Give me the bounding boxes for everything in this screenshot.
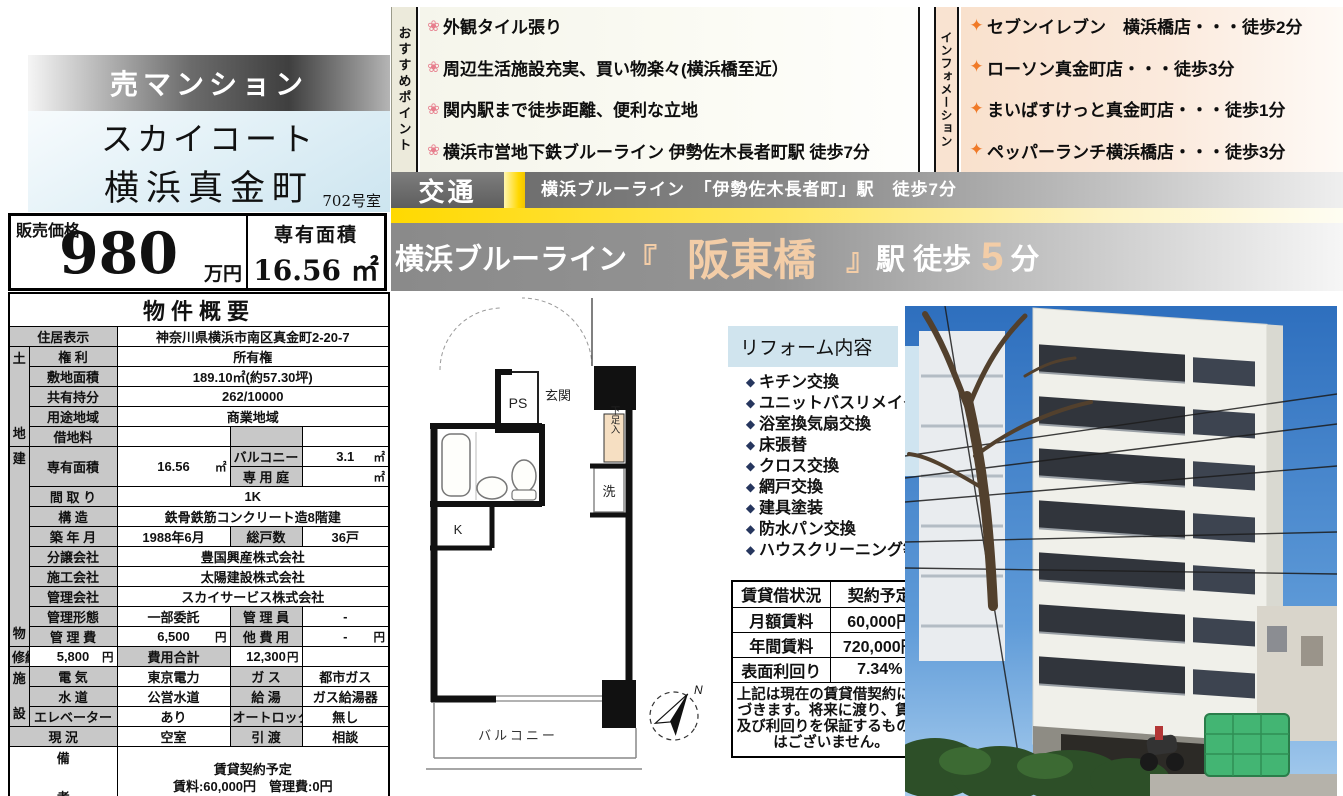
- overview-row: 敷地面積189.10㎡(約57.30坪): [9, 367, 389, 387]
- tarp-cart: [1205, 714, 1289, 776]
- information-list: ✦セブンイレブン 横浜橋店・・・徒歩2分✦ローソン真金町店・・・徒歩3分✦まいば…: [961, 7, 1343, 172]
- diamond-icon: ◆: [742, 414, 759, 435]
- overview-row: 分譲会社豊国興産株式会社: [9, 547, 389, 567]
- overview-cell: 借地料: [29, 427, 117, 447]
- overview-cell: -円: [302, 627, 389, 647]
- reform-item-label: 建具塗装: [759, 498, 823, 519]
- station-bracket-open: 『: [627, 235, 657, 279]
- overview-row: 共有持分262/10000: [9, 387, 389, 407]
- property-flyer: 売マンション スカイコート 横浜真金町 702号室 販売価格 980 万円 専有…: [0, 0, 1343, 796]
- overview-cell: 5,800円: [29, 647, 117, 667]
- overview-row: 築 年 月1988年6月総戸数36戸: [9, 527, 389, 547]
- recommend-item-label: 関内駅まで徒歩距離、便利な立地: [443, 96, 698, 121]
- transport-label: 交通: [391, 172, 504, 208]
- area-value: 16.56 ㎡: [248, 249, 384, 289]
- overview-cell: 公営水道: [117, 687, 230, 707]
- reform-item: ◆建具塗装: [742, 498, 919, 519]
- overview-cell: 構 造: [29, 507, 117, 527]
- flower-icon: ❀: [424, 58, 443, 76]
- overview-cell: 権 利: [29, 347, 117, 367]
- rental-note: 上記は現在の賃貸借契約に基づきます。将来に渡り、賃料及び利回りを保証するものでは…: [733, 683, 929, 756]
- recommend-item: ❀横浜市営地下鉄ブルーライン 伊勢佐木長者町駅 徒歩7分: [424, 138, 918, 163]
- reform-item: ◆キチン交換: [742, 372, 919, 393]
- diamond-icon: ◆: [742, 477, 759, 498]
- diamond-icon: ◆: [742, 372, 759, 393]
- overview-cell: 一部委託: [117, 607, 230, 627]
- diamond-icon: ◆: [742, 456, 759, 477]
- yellow-wedge: [504, 172, 525, 208]
- overview-cell: 管理形態: [29, 607, 117, 627]
- overview-cell: 共有持分: [29, 387, 117, 407]
- toilet: [512, 460, 536, 492]
- reform-item-label: ハウスクリーニング等: [759, 540, 919, 561]
- reform-item: ◆浴室換気扇交換: [742, 414, 919, 435]
- information-item: ✦ペッパーランチ横浜橋店・・・徒歩3分: [966, 138, 1343, 163]
- information-item: ✦セブンイレブン 横浜橋店・・・徒歩2分: [966, 13, 1343, 38]
- diamond-icon: ◆: [742, 393, 759, 414]
- overview-row: 借地料: [9, 427, 389, 447]
- recommend-points-vertical-label: おすすめポイント: [391, 7, 418, 172]
- rental-status-box: 賃貸借状況契約予定月額賃料60,000円年間賃料720,000円表面利回り7.3…: [731, 580, 931, 758]
- overview-cell: 施工会社: [29, 567, 117, 587]
- overview-cell: 土地: [9, 347, 29, 447]
- overview-row: 建物専有面積16.56㎡バルコニー3.1㎡: [9, 447, 389, 467]
- overview-cell: [302, 427, 389, 447]
- overview-cell: [230, 427, 302, 447]
- overview-cell: 用途地域: [29, 407, 117, 427]
- information-item-label: ローソン真金町店・・・徒歩3分: [987, 55, 1234, 80]
- station-line-name: 横浜ブルーライン: [395, 236, 627, 278]
- overview-cell: 空室: [117, 727, 230, 747]
- overview-cell: [117, 427, 230, 447]
- station-bracket-close: 』: [846, 235, 876, 279]
- ps-label: PS: [509, 395, 528, 411]
- property-overview-table: 物件概要 住居表示神奈川県横浜市南区真金町2-20-7土地権 利所有権敷地面積1…: [8, 292, 390, 796]
- overview-cell: スカイサービス株式会社: [117, 587, 389, 607]
- overview-cell: 189.10㎡(約57.30坪): [117, 367, 389, 387]
- overview-cell: 備考: [9, 747, 117, 796]
- overview-cell: 1988年6月: [117, 527, 230, 547]
- reform-item-label: 防水パン交換: [759, 519, 856, 540]
- rental-label: 月額賃料: [733, 607, 830, 632]
- overview-row: 間 取 り1K: [9, 487, 389, 507]
- overview-cell: 管理会社: [29, 587, 117, 607]
- overview-cell: 所有権: [117, 347, 389, 367]
- overview-cell: 専有面積: [29, 447, 117, 487]
- overview-cell: 引 渡: [230, 727, 302, 747]
- overview-cell: 専 用 庭: [230, 467, 302, 487]
- overview-cell: -: [302, 607, 389, 627]
- bathtub: [442, 434, 470, 496]
- overview-cell: 神奈川県横浜市南区真金町2-20-7: [117, 327, 389, 347]
- information-item-label: まいばすけっと真金町店・・・徒歩1分: [987, 96, 1285, 121]
- reform-item-label: 網戸交換: [759, 477, 823, 498]
- reform-item: ◆ハウスクリーニング等: [742, 540, 919, 561]
- overview-cell: 36戸: [302, 527, 389, 547]
- overview-cell: 建物: [9, 447, 29, 647]
- overview-cell: 東京電力: [117, 667, 230, 687]
- sale-type-banner: 売マンション: [28, 55, 390, 111]
- overview-cell: 1K: [117, 487, 389, 507]
- station-walk-minutes: 5: [981, 235, 1003, 280]
- flower-icon: ❀: [424, 141, 443, 159]
- transport-bar: 交通 横浜ブルーライン 「伊勢佐木長者町」駅 徒歩7分: [391, 172, 1343, 208]
- rental-status-table: 賃貸借状況契約予定月額賃料60,000円年間賃料720,000円表面利回り7.3…: [733, 582, 929, 683]
- overview-cell: 16.56㎡: [117, 447, 230, 487]
- reform-item-label: 床張替: [759, 435, 807, 456]
- overview-cell: 間 取 り: [29, 487, 117, 507]
- diamond-icon: ✦: [966, 99, 987, 119]
- wall-block-bottom: [602, 680, 636, 728]
- overview-cell: ㎡: [302, 467, 389, 487]
- overview-header-row: 物件概要: [9, 293, 389, 327]
- recommend-item-label: 外観タイル張り: [443, 13, 562, 38]
- flower-icon: ❀: [424, 17, 443, 35]
- overview-cell: 修繕積立金: [9, 647, 29, 667]
- overview-cell: 分譲会社: [29, 547, 117, 567]
- overview-cell: エレベーター: [29, 707, 117, 727]
- overview-cell: 都市ガス: [302, 667, 389, 687]
- overview-row: エレベーターありオートロック無し: [9, 707, 389, 727]
- information-item-label: ペッパーランチ横浜橋店・・・徒歩3分: [987, 138, 1285, 163]
- overview-row: 用途地域商業地域: [9, 407, 389, 427]
- overview-row: 管理会社スカイサービス株式会社: [9, 587, 389, 607]
- information-item: ✦まいばすけっと真金町店・・・徒歩1分: [966, 96, 1343, 121]
- station-minutes-unit: 分: [1010, 236, 1039, 278]
- overview-cell: 総戸数: [230, 527, 302, 547]
- overview-cell: あり: [117, 707, 230, 727]
- overview-cell: 敷地面積: [29, 367, 117, 387]
- diamond-icon: ✦: [966, 16, 987, 36]
- recommend-item-label: 横浜市営地下鉄ブルーライン 伊勢佐木長者町駅 徒歩7分: [443, 138, 870, 163]
- kitchen-label: K: [454, 522, 463, 537]
- station-name: 阪東橋: [687, 226, 816, 288]
- overview-cell: 他 費 用: [230, 627, 302, 647]
- rental-row: 表面利回り7.34%: [733, 657, 929, 682]
- station-suffix: 駅 徒歩: [876, 236, 971, 278]
- price-cell: 販売価格 980 万円: [11, 216, 248, 288]
- shoe-box-label: 下足入: [609, 406, 621, 435]
- price-value: 980: [59, 224, 178, 284]
- reform-list: ◆キチン交換◆ユニットバスリメイク◆浴室換気扇交換◆床張替◆クロス交換◆網戸交換…: [742, 372, 919, 561]
- diamond-icon: ◆: [742, 498, 759, 519]
- information-vertical-label: インフォメーション: [934, 7, 959, 172]
- overview-row: 構 造鉄骨鉄筋コンクリート造8階建: [9, 507, 389, 527]
- reform-item-label: キチン交換: [759, 372, 839, 393]
- overview-cell: 水 道: [29, 687, 117, 707]
- overview-row: 管理形態一部委託管 理 員-: [9, 607, 389, 627]
- building-name-banner: スカイコート 横浜真金町 702号室: [28, 111, 390, 212]
- rental-label: 年間賃料: [733, 632, 830, 657]
- diamond-icon: ◆: [742, 540, 759, 561]
- price-box: 販売価格 980 万円 専有面積 16.56 ㎡: [8, 213, 387, 291]
- area-cell: 専有面積 16.56 ㎡: [248, 216, 384, 288]
- overview-row: 修繕積立金5,800円費用合計12,300円: [9, 647, 389, 667]
- washer-label: 洗: [602, 484, 615, 499]
- transport-line-text: 横浜ブルーライン 「伊勢佐木長者町」駅 徒歩7分: [525, 172, 1343, 208]
- station-banner: 横浜ブルーライン 『 阪東橋 』 駅 徒歩 5 分: [391, 223, 1343, 291]
- overview-cell: 3.1㎡: [302, 447, 389, 467]
- overview-cell: ガス給湯器: [302, 687, 389, 707]
- overview-cell: 築 年 月: [29, 527, 117, 547]
- overview-cell: 鉄骨鉄筋コンクリート造8階建: [117, 507, 389, 527]
- sink: [477, 477, 507, 499]
- wall-block-top: [594, 366, 636, 410]
- rental-label: 賃貸借状況: [733, 582, 830, 607]
- overview-cell: 給 湯: [230, 687, 302, 707]
- overview-cell: 現 況: [9, 727, 117, 747]
- overview-cell: 賃貸契約予定賃料:60,000円 管理費:0円: [117, 747, 389, 796]
- rental-label: 表面利回り: [733, 657, 830, 682]
- rental-row: 月額賃料60,000円: [733, 607, 929, 632]
- overview-cell: 管 理 員: [230, 607, 302, 627]
- overview-cell: 管 理 費: [29, 627, 117, 647]
- yellow-stripe: [391, 208, 1343, 223]
- overview-row: 管 理 費6,500円他 費 用-円: [9, 627, 389, 647]
- recommend-item-label: 周辺生活施設充実、買い物楽々(横浜橋至近）: [443, 55, 789, 80]
- overview-row: 土地権 利所有権: [9, 347, 389, 367]
- overview-cell: 豊国興産株式会社: [117, 547, 389, 567]
- information-item: ✦ローソン真金町店・・・徒歩3分: [966, 55, 1343, 80]
- overview-row: 現 況空室引 渡相談: [9, 727, 389, 747]
- overview-row: 備考賃貸契約予定賃料:60,000円 管理費:0円: [9, 747, 389, 796]
- building-name-line1: スカイコート: [28, 111, 390, 160]
- overview-cell: ガ ス: [230, 667, 302, 687]
- floor-plan: PS 玄関 下足入 洗 K バ: [398, 296, 738, 796]
- overview-row: 住居表示神奈川県横浜市南区真金町2-20-7: [9, 327, 389, 347]
- reform-item: ◆ユニットバスリメイク: [742, 393, 919, 414]
- reform-item: ◆防水パン交換: [742, 519, 919, 540]
- balcony-label: バルコニー: [478, 728, 558, 743]
- overview-row: 施工会社太陽建設株式会社: [9, 567, 389, 587]
- overview-row: 水 道公営水道給 湯ガス給湯器: [9, 687, 389, 707]
- overview-cell: オートロック: [230, 707, 302, 727]
- overview-cell: 住居表示: [9, 327, 117, 347]
- entrance-label: 玄関: [545, 388, 571, 403]
- recommend-item: ❀外観タイル張り: [424, 13, 918, 38]
- overview-cell: 太陽建設株式会社: [117, 567, 389, 587]
- overview-cell: 12,300円: [230, 647, 302, 667]
- diamond-icon: ✦: [966, 140, 987, 160]
- recommend-item: ❀周辺生活施設充実、買い物楽々(横浜橋至近）: [424, 55, 918, 80]
- information-item-label: セブンイレブン 横浜橋店・・・徒歩2分: [987, 13, 1302, 38]
- overview-cell: 無し: [302, 707, 389, 727]
- overview-row: 施設電 気東京電力ガ ス都市ガス: [9, 667, 389, 687]
- area-label: 専有面積: [248, 220, 384, 247]
- reform-item-label: 浴室換気扇交換: [759, 414, 871, 435]
- reform-title: リフォーム内容: [728, 326, 898, 367]
- overview-cell: 商業地域: [117, 407, 389, 427]
- reform-item-label: クロス交換: [759, 456, 839, 477]
- sale-type-label: 売マンション: [110, 63, 308, 103]
- reform-item: ◆クロス交換: [742, 456, 919, 477]
- compass-north-label: N: [694, 683, 703, 697]
- overview-cell: 電 気: [29, 667, 117, 687]
- flower-icon: ❀: [424, 100, 443, 118]
- reform-item: ◆網戸交換: [742, 477, 919, 498]
- overview-cell: 費用合計: [117, 647, 230, 667]
- price-unit: 万円: [204, 259, 242, 286]
- overview-cell: 6,500円: [117, 627, 230, 647]
- overview-cell: 相談: [302, 727, 389, 747]
- rental-row: 賃貸借状況契約予定: [733, 582, 929, 607]
- rental-row: 年間賃料720,000円: [733, 632, 929, 657]
- diamond-icon: ◆: [742, 435, 759, 456]
- diamond-icon: ◆: [742, 519, 759, 540]
- recommend-points-list: ❀外観タイル張り❀周辺生活施設充実、買い物楽々(横浜橋至近）❀関内駅まで徒歩距離…: [420, 7, 920, 172]
- room-number: 702号室: [322, 190, 381, 211]
- building-photo: [905, 306, 1337, 796]
- overview-title: 物件概要: [9, 293, 389, 327]
- overview-cell: 262/10000: [117, 387, 389, 407]
- reform-item: ◆床張替: [742, 435, 919, 456]
- reform-item-label: ユニットバスリメイク: [759, 393, 919, 414]
- overview-cell: バルコニー: [230, 447, 302, 467]
- recommend-item: ❀関内駅まで徒歩距離、便利な立地: [424, 96, 918, 121]
- diamond-icon: ✦: [966, 57, 987, 77]
- overview-cell: 施設: [9, 667, 29, 727]
